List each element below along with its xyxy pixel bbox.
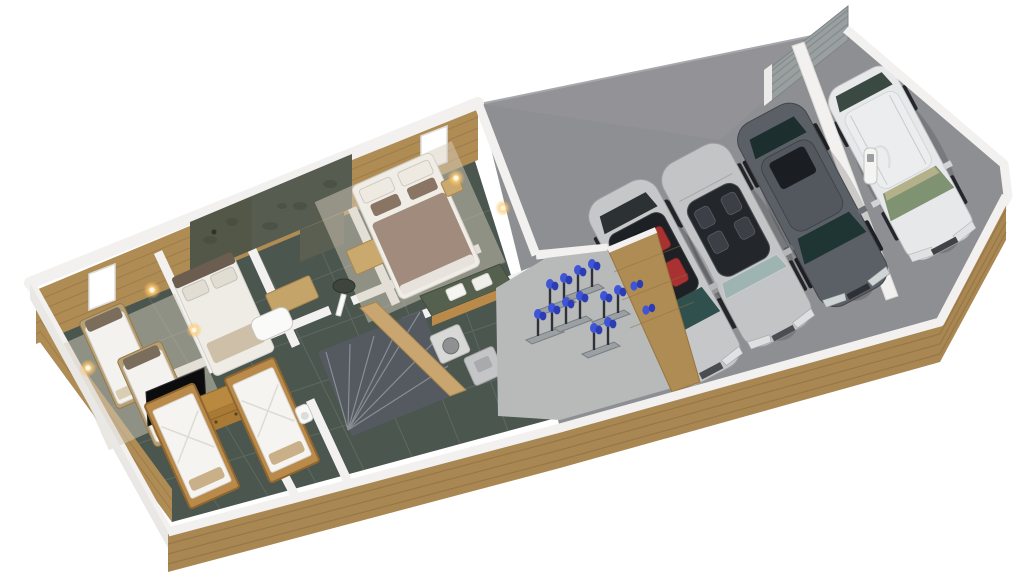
wall-lamp-icon [447,169,465,187]
floorplan-svg: NETFLIX [0,0,1022,575]
wall-lamp-icon [143,281,161,299]
wall-lamp-icon [186,322,202,338]
stone-sink [333,279,355,293]
garage-door-post [764,64,772,106]
wall-lamp-icon [79,359,97,377]
floorplan-render: NETFLIX [0,0,1022,575]
wall-lamp-icon [495,200,511,216]
shower-head-icon [212,230,217,235]
